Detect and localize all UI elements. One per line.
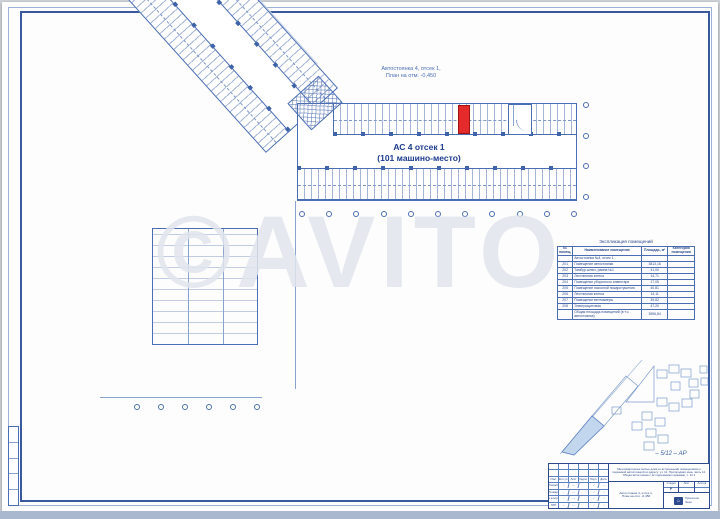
room-schedule-table: № помещ. Наименование помещения Площадь,… <box>557 246 695 321</box>
area-label-line1: АС 4 отсек 1 <box>352 142 486 153</box>
col-izm: Изм. <box>549 477 559 482</box>
col-dok: №док. <box>579 477 589 482</box>
room-schedule-rows: Автостоянка №4, отсек 1201Помещение авто… <box>558 256 695 320</box>
current-section-highlight <box>562 416 604 455</box>
room-schedule: Экспликация помещений № помещ. Наименова… <box>557 239 695 320</box>
key-plan <box>556 352 708 458</box>
document-number: – 5/12 – АР <box>626 451 716 457</box>
col-header-name: Наименование помещения <box>573 246 642 256</box>
plan-caption-line1: Автостоянка 4, отсек 1, <box>338 66 484 73</box>
area-label-line2: (101 машино-место) <box>352 153 486 164</box>
org-name-line2: бюро <box>685 501 699 504</box>
axis-bubbles-lower-block <box>134 404 260 410</box>
room-schedule-title: Экспликация помещений <box>557 239 695 244</box>
organization-logo-icon: ⌂ <box>674 497 683 505</box>
col-list: Лист <box>569 477 579 482</box>
col-podp: Подп. <box>589 477 599 482</box>
technical-room <box>508 104 532 135</box>
organization-logo-cell: ⌂ Проектное бюро <box>664 493 709 508</box>
col-header-area: Площадь, м² <box>641 246 667 256</box>
project-description: Многоквартирные жилые дома со встроенным… <box>609 464 709 482</box>
axis-bubbles-right <box>583 102 589 200</box>
parking-stall-band <box>333 103 577 135</box>
col-data: Дата <box>599 477 608 482</box>
approval-strip <box>8 426 19 506</box>
stage-value: Р <box>664 488 678 493</box>
col-header-note: Категория помещения <box>668 246 695 256</box>
parking-area-label: АС 4 отсек 1 (101 машино-место) <box>352 142 486 164</box>
signature-block: Изм. Кол.уч. Лист №док. Подп. Дата Разра… <box>549 464 609 508</box>
stage-grid: СтадияР Лист Листов <box>664 482 709 493</box>
highlighted-parking-space <box>458 105 470 134</box>
col-koluch: Кол.уч. <box>559 477 569 482</box>
drawing-photo: { "watermark": "©AVITO", "plan": { "top_… <box>0 0 720 519</box>
sheet-name: Автостоянка 4, отсек 1. План на отм. -0,… <box>609 482 664 508</box>
plan-caption-line2: План на отм. -0,450 <box>338 73 484 80</box>
column-row <box>297 166 577 170</box>
plan-caption: Автостоянка 4, отсек 1, План на отм. -0,… <box>338 66 484 81</box>
col-header-number: № помещ. <box>558 246 573 256</box>
avito-watermark: ©AVITO <box>156 194 563 311</box>
sheet-name-line2: План на отм. -0,450 <box>622 495 650 498</box>
dimension-line <box>100 397 262 398</box>
title-block: Изм. Кол.уч. Лист №док. Подп. Дата Разра… <box>548 463 710 509</box>
column-row <box>333 132 577 136</box>
schedule-row: Общая площадь помещений (в т.ч. автостоя… <box>558 310 695 320</box>
photo-edge-strip <box>0 511 720 519</box>
